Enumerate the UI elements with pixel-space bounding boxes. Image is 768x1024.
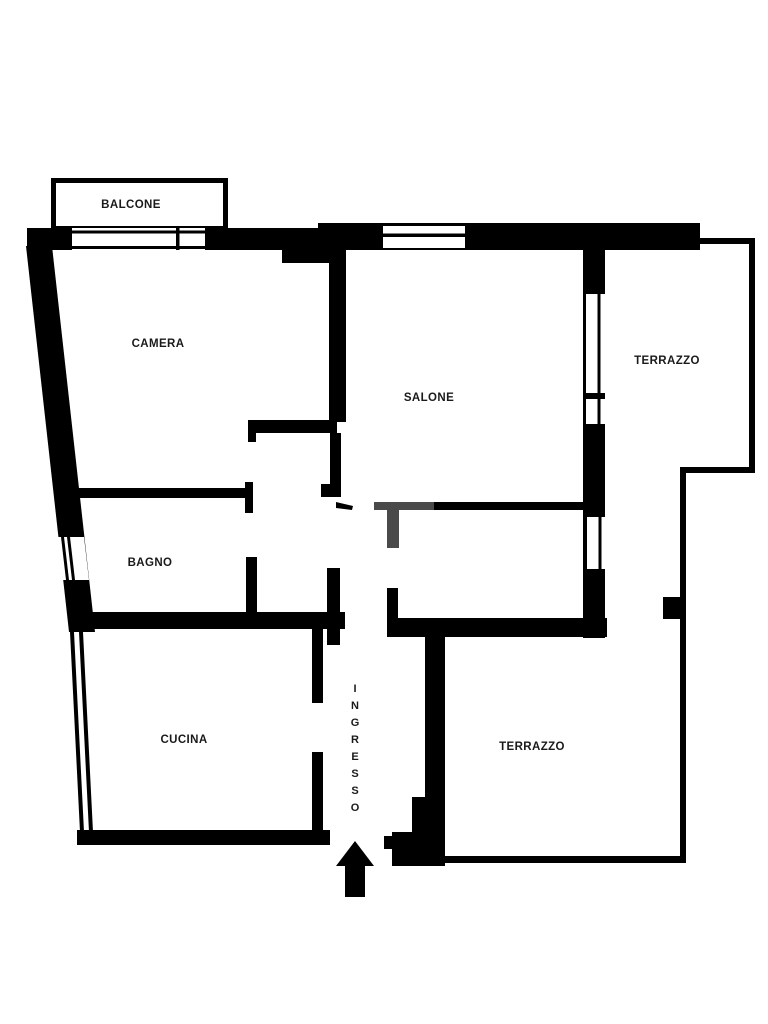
room-label-balcone: BALCONE	[101, 199, 161, 211]
room-label-bagno: BAGNO	[128, 557, 173, 569]
salone-terrace-window	[586, 294, 605, 393]
bagno-walls	[71, 482, 345, 645]
camera-salone-wall	[321, 250, 353, 510]
salone-right-wall	[583, 248, 605, 638]
room-label-camera: CAMERA	[132, 338, 185, 350]
floor-plan: BALCONE CAMERA SALONE TERRAZZO BAGNO CUC…	[0, 0, 768, 1024]
cucina-bottom-wall	[77, 830, 330, 845]
door-symbol	[374, 502, 434, 548]
camera-bottom-wall	[248, 420, 337, 442]
room-label-terrazzo-upper: TERRAZZO	[634, 355, 700, 367]
room-label-ingresso: INGRESSO	[349, 683, 361, 819]
salone-bottom-wall	[387, 502, 607, 637]
room-label-terrazzo-lower: TERRAZZO	[499, 741, 565, 753]
room-label-salone: SALONE	[404, 392, 454, 404]
floor-plan-drawing	[0, 0, 768, 1024]
terrace-window	[587, 517, 605, 569]
camera-window	[72, 228, 205, 250]
exterior-left-wall	[26, 246, 95, 832]
salone-terrace-window	[586, 399, 605, 424]
salone-window	[383, 226, 465, 248]
entrance-arrow-icon	[336, 841, 374, 897]
ingresso-corridor-walls	[312, 629, 445, 866]
parapet-pillar	[663, 597, 686, 619]
room-label-cucina: CUCINA	[160, 734, 207, 746]
